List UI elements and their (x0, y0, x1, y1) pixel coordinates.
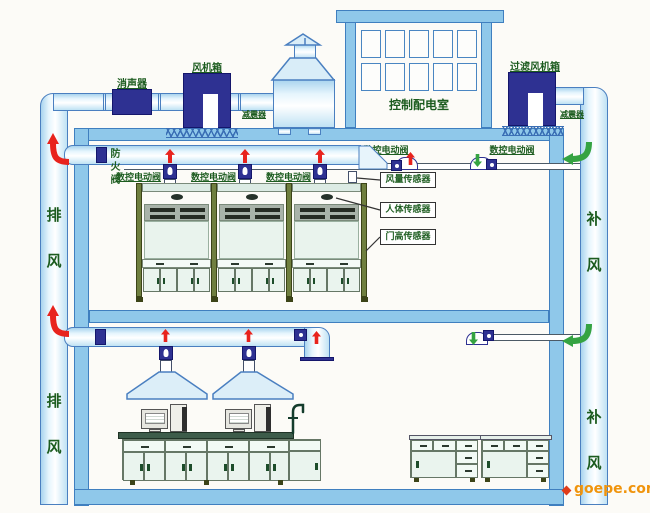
exhaust-stack-shoulder (272, 58, 334, 80)
hood-counter (217, 259, 286, 268)
bench-drawer (527, 451, 549, 464)
vent-slot (330, 215, 355, 219)
fume-hood-unit (217, 183, 286, 297)
elbow-flange (300, 357, 334, 361)
silencer-box (112, 89, 152, 115)
bench-countertop (118, 432, 294, 439)
hood-vent-band (219, 204, 284, 221)
bench-drawer (249, 440, 291, 452)
panel-cell (385, 63, 405, 91)
cnc-valve-actuator (238, 164, 252, 179)
rooftop-supply-duct (554, 87, 584, 105)
duct-seam (103, 93, 106, 111)
hood-header (217, 183, 286, 192)
vent-slot (225, 208, 250, 212)
vent-slot (225, 215, 250, 219)
canopy-stack (160, 360, 172, 374)
canopy-hood (213, 372, 293, 399)
control-room-left-post (345, 22, 356, 128)
fume-hood-unit (292, 183, 361, 297)
panel-cell (433, 63, 453, 91)
vent-slot (255, 215, 280, 219)
cabinet-door (194, 268, 210, 292)
bench-drawer (456, 440, 478, 451)
bench-foot (541, 478, 546, 482)
hood-foot (361, 297, 368, 302)
cabinet-door (269, 268, 285, 292)
hood-header (142, 183, 211, 192)
cabinet-door (207, 452, 228, 481)
cnc-valve-actuator (391, 160, 402, 171)
fan-box-label: 风机箱 (177, 59, 237, 74)
cnc-valve-actuator (294, 329, 307, 341)
bench-drawer (433, 440, 456, 451)
canopy-hood (127, 372, 207, 399)
bench-foot (470, 478, 475, 482)
cnc-valve-actuator (163, 164, 177, 179)
ground-slab (74, 489, 564, 505)
computer-monitor (141, 409, 168, 429)
cabinet-door (252, 268, 269, 292)
vent-slot (300, 215, 325, 219)
filter-fan-vibration-base (502, 126, 564, 136)
human-sensor-icon (321, 194, 333, 200)
control-room-roof (336, 10, 504, 23)
panel-cell (385, 30, 405, 58)
computer-monitor (225, 409, 252, 429)
bench-cabinets (122, 439, 290, 480)
bench-foot (130, 480, 135, 485)
drawer-handle (306, 263, 314, 265)
callout-line-airflow (357, 178, 380, 180)
cnc-valve-actuator (486, 159, 497, 170)
panel-cell (409, 63, 429, 91)
vent-slot (180, 215, 205, 219)
fire-damper (96, 147, 107, 163)
monitor-base (149, 429, 161, 432)
cabinet-door (482, 451, 527, 478)
drawer-handle (265, 263, 273, 265)
filter-fan-box-notch (528, 93, 543, 126)
hood-sash (219, 221, 284, 259)
panel-cell (457, 63, 477, 91)
sink-cabinet (288, 439, 321, 481)
panel-cell (361, 30, 381, 58)
cabinet-door (411, 451, 456, 478)
callout-line-door (366, 237, 380, 251)
hood-counter (292, 259, 361, 268)
human-sensor-icon (171, 194, 183, 200)
shock-absorber-right-label: 减震器 (556, 109, 588, 120)
vent-slot (180, 208, 205, 212)
fan-box-vibration-base (166, 128, 238, 138)
bench-foot (204, 480, 209, 485)
exhaust-stack-body (273, 79, 335, 128)
bench-drawer (482, 440, 504, 451)
cabinet-door (143, 268, 160, 292)
hood-vent-band (144, 204, 209, 221)
cabinet-door (249, 452, 270, 481)
side-bench (481, 438, 549, 478)
bench-drawer (207, 440, 249, 452)
hood-frame-post (361, 183, 367, 297)
exhaust-shaft-label-lower: 排风 (46, 378, 62, 470)
exhaust-stack-foot (308, 128, 321, 135)
panel-cell (409, 30, 429, 58)
right-wall (549, 128, 564, 506)
exhaust-stack-foot (278, 128, 291, 135)
door-height-sensor-label: 门高传感器 (380, 229, 436, 245)
cabinet-door (235, 268, 252, 292)
vent-slot (255, 208, 280, 212)
drawer-handle (340, 263, 348, 265)
exhaust-shaft-label-upper: 排风 (46, 192, 62, 284)
fire-damper-lower (95, 329, 106, 345)
monitor-screen (145, 413, 165, 424)
hood-sash (144, 221, 209, 259)
exhaust-stack-cap (294, 44, 316, 59)
human-sensor-icon (246, 194, 258, 200)
cabinet-door (310, 268, 327, 292)
tower-panel (266, 407, 271, 431)
bench-foot (414, 478, 419, 482)
cnc-valve-label: 数控电动阀 (488, 143, 536, 156)
cnc-valve-label: 数控电动阀 (112, 170, 161, 183)
cnc-valve-label: 数控电动阀 (187, 170, 236, 183)
faucet-icon (293, 405, 303, 433)
canopy-stack (243, 360, 255, 374)
cnc-valve-actuator (159, 346, 173, 360)
cabinet-door (218, 268, 235, 292)
filter-fan-box-label: 过滤风机箱 (503, 58, 567, 73)
hood-header (292, 183, 361, 192)
control-room-panels (361, 30, 477, 91)
cabinet-door (228, 452, 249, 481)
panel-cell (457, 30, 477, 58)
vent-slot (150, 215, 175, 219)
bench-drawer (123, 440, 165, 452)
hood-foot (211, 297, 218, 302)
cnc-valve-label: 数控电动阀 (262, 170, 311, 183)
cabinet-door (293, 268, 310, 292)
control-room-right-post (481, 22, 492, 128)
bench-drawer (456, 464, 478, 478)
duct-seam (158, 93, 161, 111)
cabinet-door (177, 268, 194, 292)
fume-hood-unit (142, 183, 211, 297)
bench-drawer (504, 440, 527, 451)
cnc-valve-actuator (242, 346, 256, 360)
computer-tower (254, 404, 271, 432)
cabinet-door (327, 268, 344, 292)
upper-exhaust-duct (64, 145, 361, 165)
shock-absorber-left-label: 减震器 (236, 109, 272, 120)
cabinet-door (123, 452, 144, 481)
cnc-valve-actuator (313, 164, 327, 179)
cabinet-door (289, 451, 321, 481)
human-sensor-label: 人体传感器 (380, 202, 436, 218)
silencer-label: 消声器 (102, 75, 162, 90)
cabinet-door (144, 452, 165, 481)
cnc-valve-actuator (483, 330, 494, 341)
lower-supply-line (486, 334, 580, 341)
mid-floor-slab (89, 310, 549, 323)
bench-drawer (289, 440, 321, 451)
vent-slot (330, 208, 355, 212)
panel-cell (361, 63, 381, 91)
supply-shaft-label-lower: 补风 (586, 394, 602, 486)
watermark-text: goepe.com (574, 481, 650, 497)
lab-ventilation-diagram: 消声器 风机箱 减震器 控制配电室 过滤风机箱 减震器 排风 排风 补风 补风 … (0, 0, 650, 513)
drawer-handle (190, 263, 198, 265)
monitor-screen (229, 413, 249, 424)
bench-drawer (411, 440, 433, 451)
fan-box-notch (203, 94, 218, 128)
hood-vent-band (294, 204, 359, 221)
bench-foot (278, 480, 283, 485)
vent-slot (300, 208, 325, 212)
cabinet-door (344, 268, 360, 292)
side-bench (410, 438, 478, 478)
bench-drawer (456, 451, 478, 464)
drawer-handle (231, 263, 239, 265)
control-room-label: 控制配电室 (369, 96, 469, 113)
bench-drawer (527, 440, 549, 451)
hood-foot (286, 297, 293, 302)
vent-slot (150, 208, 175, 212)
bench-drawer (527, 464, 549, 478)
cabinet-door (160, 268, 177, 292)
monitor-base (233, 429, 245, 432)
cabinet-door (165, 452, 186, 481)
air-flow-sensor-label: 风量传感器 (380, 172, 436, 188)
hood-counter (142, 259, 211, 268)
left-wall (74, 128, 89, 506)
tower-panel (182, 407, 187, 431)
bench-foot (485, 478, 490, 482)
cabinet-door (186, 452, 207, 481)
hood-sash (294, 221, 359, 259)
supply-shaft-label-upper: 补风 (586, 196, 602, 288)
cnc-valve-label: 数控电动阀 (362, 143, 410, 156)
computer-tower (170, 404, 187, 432)
drawer-handle (156, 263, 164, 265)
bench-drawer (165, 440, 207, 452)
air-flow-sensor-device (348, 171, 357, 183)
panel-cell (433, 30, 453, 58)
hood-foot (136, 297, 143, 302)
